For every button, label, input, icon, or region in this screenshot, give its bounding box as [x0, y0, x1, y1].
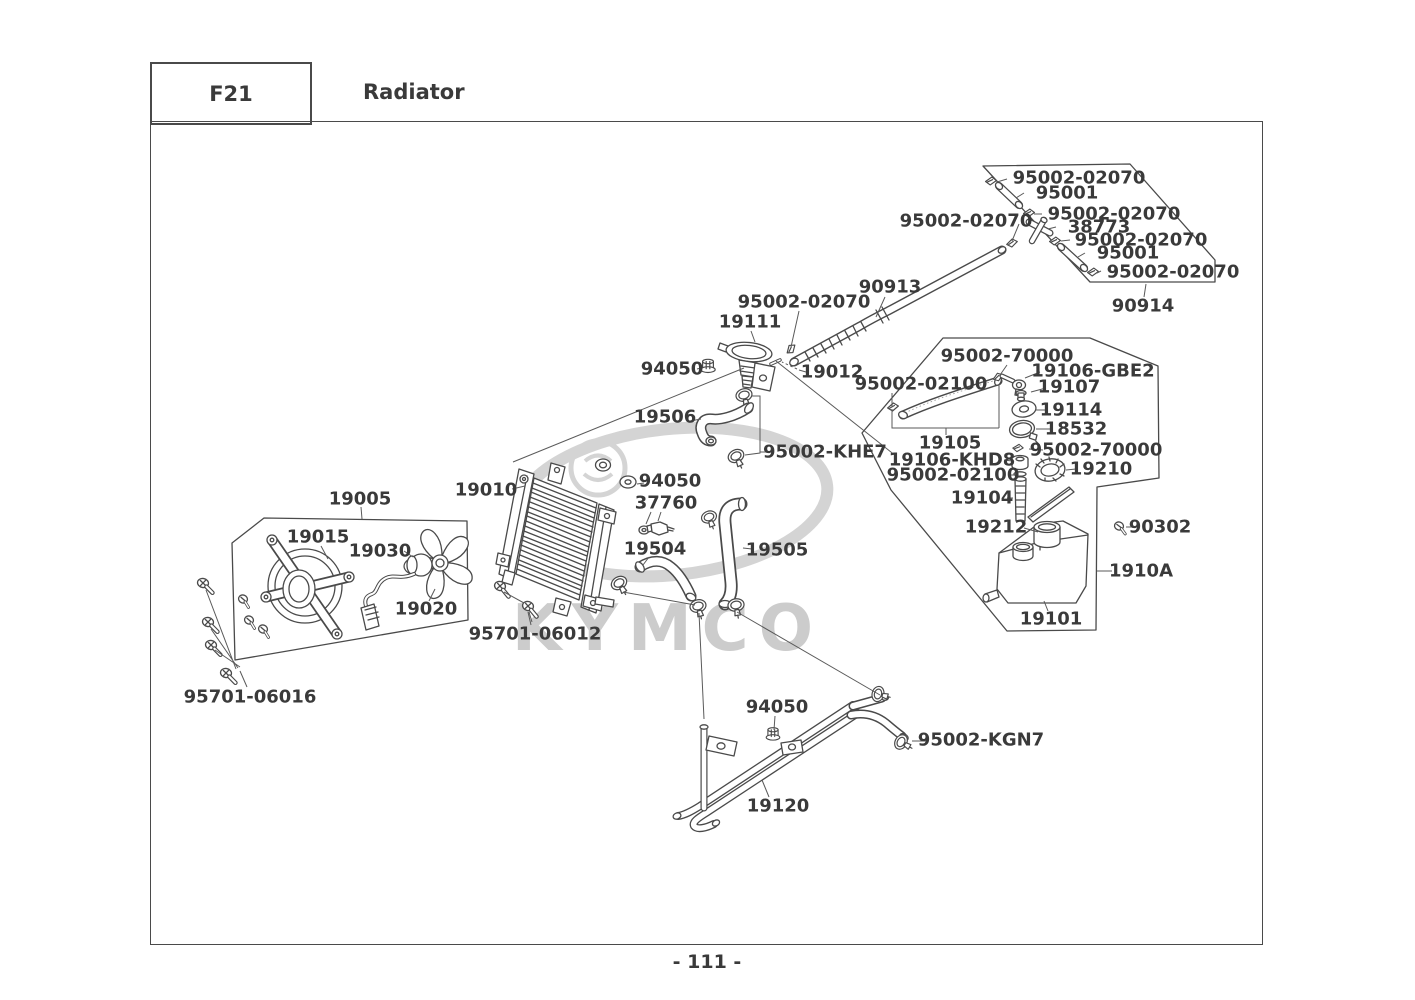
- part-label-19504: 19504: [624, 539, 687, 560]
- part-label-95002-KHE7: 95002-KHE7: [763, 442, 887, 463]
- part-label-95002-02070: 95002-02070: [738, 292, 871, 313]
- part-label-95001: 95001: [1097, 243, 1160, 264]
- part-label-19101: 19101: [1020, 609, 1083, 630]
- part-label-37760: 37760: [635, 493, 698, 514]
- part-label-90302: 90302: [1129, 517, 1192, 538]
- part-label-95701-06016: 95701-06016: [184, 687, 317, 708]
- part-label-1910A: 1910A: [1109, 561, 1173, 582]
- part-label-19111: 19111: [719, 312, 782, 333]
- part-label-94050: 94050: [639, 471, 702, 492]
- part-label-19005: 19005: [329, 489, 392, 510]
- part-label-19114: 19114: [1040, 400, 1103, 421]
- part-label-95002-02070: 95002-02070: [900, 211, 1033, 232]
- part-label-95002-70000: 95002-70000: [1030, 440, 1163, 461]
- part-label-90914: 90914: [1112, 296, 1175, 317]
- part-label-95002-02070: 95002-02070: [1107, 262, 1240, 283]
- part-label-95001: 95001: [1036, 183, 1099, 204]
- page-number: - 111 -: [657, 951, 757, 973]
- part-label-19120: 19120: [747, 796, 810, 817]
- part-label-95002-02100: 95002-02100: [855, 374, 988, 395]
- part-label-95002-02100: 95002-02100: [887, 465, 1020, 486]
- part-label-95701-06012: 95701-06012: [469, 624, 602, 645]
- part-label-19030: 19030: [349, 541, 412, 562]
- manual-page: F21 Radiator: [0, 0, 1415, 1000]
- part-label-19210: 19210: [1070, 459, 1133, 480]
- exploded-diagram: KYMCO: [0, 0, 1415, 1000]
- part-label-94050: 94050: [641, 359, 704, 380]
- part-label-19020: 19020: [395, 599, 458, 620]
- part-label-19506: 19506: [634, 407, 697, 428]
- part-label-19104: 19104: [951, 488, 1014, 509]
- part-label-18532: 18532: [1045, 419, 1108, 440]
- part-label-95002-KGN7: 95002-KGN7: [918, 730, 1044, 751]
- part-label-94050: 94050: [746, 697, 809, 718]
- part-label-19212: 19212: [965, 517, 1028, 538]
- part-label-19107: 19107: [1038, 377, 1101, 398]
- part-label-19010: 19010: [455, 480, 518, 501]
- part-label-19505: 19505: [746, 540, 809, 561]
- part-label-19015: 19015: [287, 527, 350, 548]
